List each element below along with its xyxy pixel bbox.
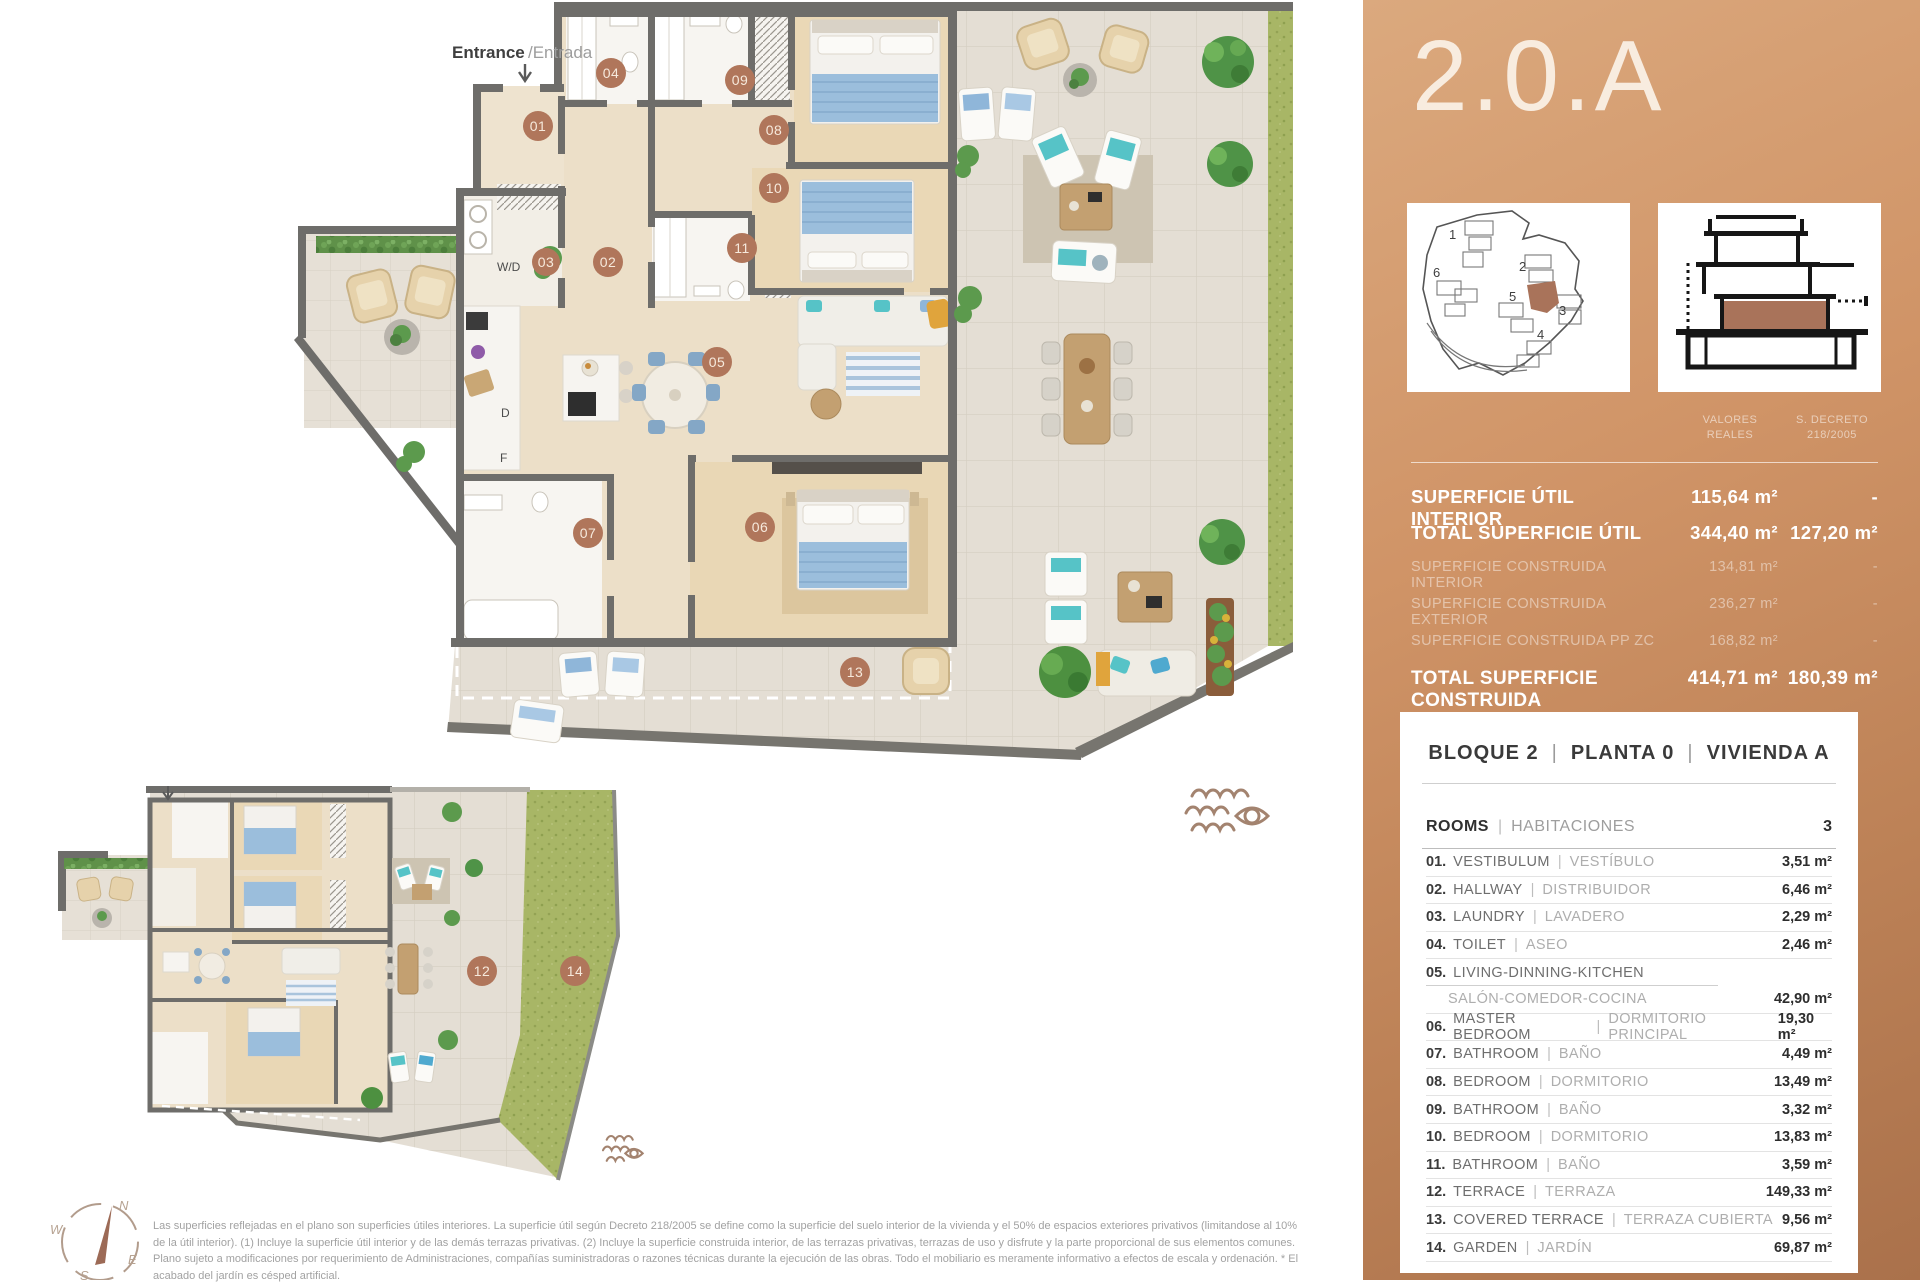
column-header-decreto: S. DECRETO 218/2005 (1780, 413, 1884, 444)
left-terrace (294, 226, 482, 546)
room-row: 11.BATHROOM|BAÑO3,59 m² (1426, 1152, 1832, 1180)
surface-value-real: 236,27 m² (1670, 596, 1778, 612)
badge-06: 06 (752, 519, 769, 535)
surface-table-divider (1411, 462, 1878, 463)
heading-separator: | (1539, 742, 1571, 764)
room-row: 01.VESTIBULUM|VESTÍBULO3,51 m² (1426, 849, 1832, 877)
badge-02: 02 (600, 254, 617, 270)
floor-plan-illustration: Entrance /Entrada W/D D F 01 02 03 04 05… (0, 0, 1363, 1280)
compass-s: S (80, 1268, 89, 1280)
card-divider (1422, 783, 1836, 784)
room-row: 09.BATHROOM|BAÑO3,32 m² (1426, 1096, 1832, 1124)
apartment-interior (460, 8, 955, 645)
surface-label: TOTAL SUPERFICIE CONSTRUIDA (1411, 668, 1670, 712)
heading-vivienda: VIVIENDA A (1707, 742, 1830, 764)
grass-strip (1268, 8, 1293, 646)
surface-value-decreto: - (1778, 596, 1878, 612)
site-number-5: 5 (1509, 289, 1516, 304)
room-row: 08.BEDROOM|DORMITORIO13,49 m² (1426, 1069, 1832, 1097)
room-row-living-line1: 05.LIVING-DINNING-KITCHEN (1426, 959, 1832, 986)
heading-separator: | (1674, 742, 1706, 764)
site-number-6: 6 (1433, 265, 1440, 280)
wardrobe (752, 12, 790, 104)
sea-view-icon-small (603, 1136, 643, 1161)
surface-value-real: 115,64 m² (1670, 486, 1778, 508)
site-number-2: 2 (1519, 259, 1526, 274)
badge-14: 14 (567, 963, 584, 979)
badge-03: 03 (538, 254, 555, 270)
surface-value-decreto: - (1778, 486, 1878, 508)
surface-row: TOTAL SUPERFICIE ÚTIL 344,40 m² 127,20 m… (1411, 522, 1878, 544)
badge-12: 12 (474, 963, 491, 979)
site-number-3: 3 (1559, 303, 1566, 318)
surface-value-real: 168,82 m² (1670, 633, 1778, 649)
room-row: 14.GARDEN|JARDÍN69,87 m² (1426, 1234, 1832, 1262)
washer-dryer-label: W/D (497, 260, 521, 274)
room-row: 07.BATHROOM|BAÑO4,49 m² (1426, 1041, 1832, 1069)
surface-value-decreto: - (1778, 633, 1878, 649)
surface-value-real: 414,71 m² (1670, 668, 1778, 690)
badge-04: 04 (603, 65, 620, 81)
surface-label: TOTAL SUPERFICIE ÚTIL (1411, 522, 1670, 544)
badge-13: 13 (847, 664, 864, 680)
rooms-header-es: HABITACIONES (1511, 818, 1635, 836)
compass-w: W (50, 1222, 64, 1237)
room-row: 10.BEDROOM|DORMITORIO13,83 m² (1426, 1124, 1832, 1152)
washer-dryer (464, 200, 492, 254)
legal-disclaimer: Las superficies reflejadas en el plano s… (153, 1218, 1311, 1284)
card-heading: BLOQUE 2|PLANTA 0|VIVIENDA A (1400, 742, 1858, 765)
rooms-table: 01.VESTIBULUM|VESTÍBULO3,51 m² 02.HALLWA… (1426, 849, 1832, 1262)
bed (810, 20, 940, 124)
highlighted-floor (1724, 301, 1826, 329)
site-plan-diagram: 1 6 2 5 3 4 (1407, 203, 1630, 392)
unit-detail-card: BLOQUE 2|PLANTA 0|VIVIENDA A ROOMS | HAB… (1400, 712, 1858, 1273)
tree (1202, 36, 1254, 88)
rooms-count: 3 (1823, 818, 1832, 836)
room-row: 02.HALLWAY|DISTRIBUIDOR6,46 m² (1426, 877, 1832, 905)
badge-11: 11 (734, 240, 750, 256)
compass-e: E (128, 1252, 137, 1267)
surface-value-real: 344,40 m² (1670, 522, 1778, 544)
surface-row: SUPERFICIE CONSTRUIDA PP ZC 168,82 m² - (1411, 633, 1878, 649)
bed (786, 490, 919, 590)
site-number-4: 4 (1537, 327, 1544, 342)
room-row: 04.TOILET|ASEO2,46 m² (1426, 932, 1832, 960)
surface-row: SUPERFICIE CONSTRUIDA EXTERIOR 236,27 m²… (1411, 596, 1878, 628)
surface-value-decreto: - (1778, 559, 1878, 575)
room-row: 03.LAUNDRY|LAVADERO2,29 m² (1426, 904, 1832, 932)
bed (800, 180, 914, 282)
rooms-header-en: ROOMS (1426, 818, 1489, 836)
room-row: 06.MASTER BEDROOM|DORMITORIO PRINCIPAL19… (1426, 1014, 1832, 1042)
heading-bloque: BLOQUE 2 (1428, 742, 1538, 764)
dishwasher-label: D (501, 406, 510, 420)
overview-plan: 12 14 (58, 786, 643, 1180)
compass-icon: N W E S (50, 1198, 138, 1280)
compass-n: N (119, 1198, 129, 1213)
surface-value-decreto: 127,20 m² (1778, 522, 1878, 544)
room-row: 13.COVERED TERRACE|TERRAZA CUBIERTA9,56 … (1426, 1207, 1832, 1235)
outdoor-dining (1042, 334, 1132, 444)
highlighted-unit (1527, 281, 1559, 313)
site-number-1: 1 (1449, 227, 1456, 242)
tree (1199, 519, 1245, 565)
surface-label: SUPERFICIE CONSTRUIDA EXTERIOR (1411, 596, 1670, 628)
surface-row-total: TOTAL SUPERFICIE CONSTRUIDA 414,71 m² 18… (1411, 668, 1878, 712)
column-header-valores-reales: VALORES REALES (1678, 413, 1782, 444)
surface-label: SUPERFICIE CONSTRUIDA PP ZC (1411, 633, 1670, 649)
building-section-diagram (1658, 203, 1881, 392)
badge-05: 05 (709, 354, 726, 370)
rug (846, 352, 920, 396)
surface-row: SUPERFICIE CONSTRUIDA INTERIOR 134,81 m²… (1411, 559, 1878, 591)
rooms-header-separator: | (1489, 818, 1511, 836)
hedge (316, 236, 466, 253)
badge-08: 08 (766, 122, 783, 138)
surface-value-decreto: 180,39 m² (1778, 668, 1878, 690)
badge-09: 09 (732, 72, 749, 88)
tree (1207, 141, 1253, 187)
surface-value-real: 134,81 m² (1670, 559, 1778, 575)
entrance-arrow-icon (519, 64, 531, 81)
room-row-living-line2: SALÓN-COMEDOR-COCINA42,90 m² (1426, 986, 1832, 1014)
unit-title: 2.0.A (1412, 26, 1666, 126)
badge-01: 01 (530, 118, 547, 134)
room-row: 12.TERRACE|TERRAZA149,33 m² (1426, 1179, 1832, 1207)
rooms-header: ROOMS | HABITACIONES 3 (1426, 818, 1832, 836)
wardrobe (497, 184, 561, 210)
surface-label: SUPERFICIE CONSTRUIDA INTERIOR (1411, 559, 1670, 591)
badge-07: 07 (580, 525, 597, 541)
sea-view-icon (1186, 790, 1268, 830)
entrance-label-en: Entrance (452, 43, 525, 62)
heading-planta: PLANTA 0 (1571, 742, 1675, 764)
badge-10: 10 (766, 180, 783, 196)
entrance-label-es: /Entrada (528, 43, 593, 62)
tv-console (772, 462, 922, 474)
fridge-label: F (500, 451, 507, 465)
